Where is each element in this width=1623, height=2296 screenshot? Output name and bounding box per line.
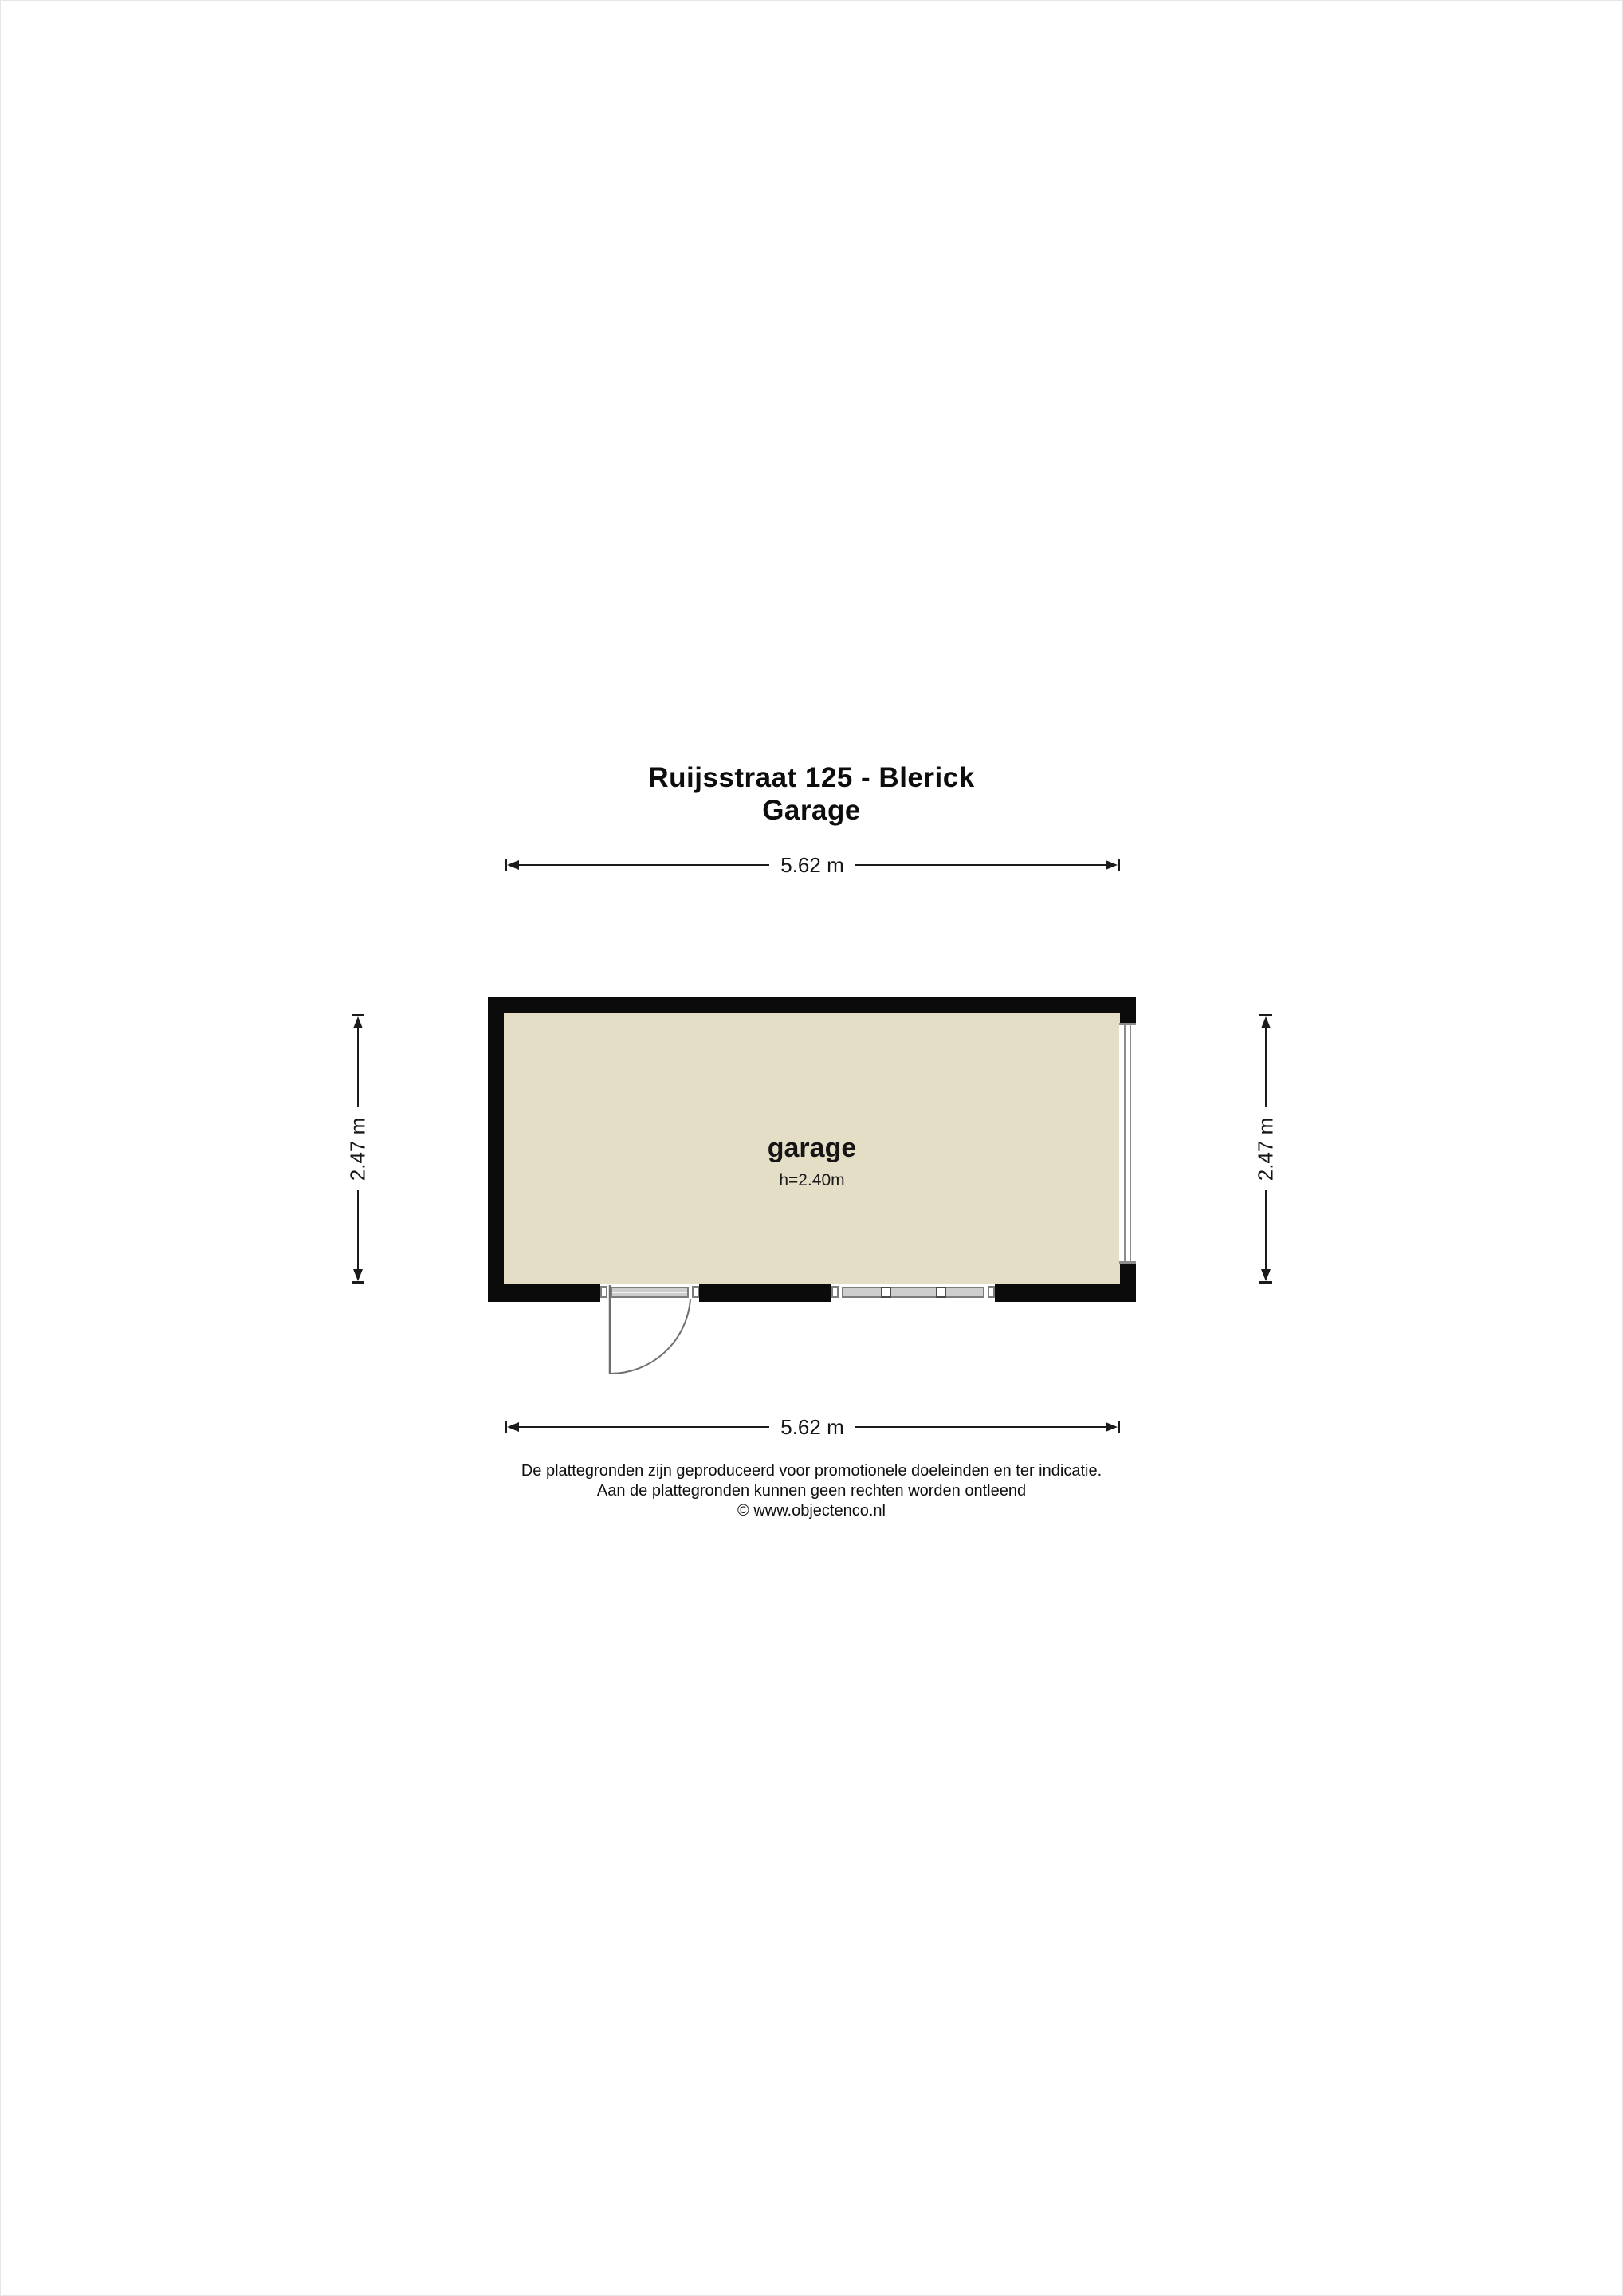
- arrow-left-icon: [507, 860, 519, 870]
- arrow-down-icon: [353, 1269, 363, 1281]
- dim-line: [519, 1426, 769, 1428]
- dimension-bottom-label: 5.62 m: [769, 1415, 855, 1440]
- room-label-block: garage h=2.40m: [504, 1133, 1120, 1190]
- window-mullion: [936, 1287, 946, 1298]
- dimension-left: 2.47 m: [342, 1014, 374, 1284]
- copyright-line: © www.objectenco.nl: [0, 1501, 1623, 1521]
- dimension-left-label: 2.47 m: [326, 1107, 390, 1190]
- arrow-up-icon: [353, 1016, 363, 1028]
- dimension-right: 2.47 m: [1250, 1014, 1282, 1284]
- arrow-right-icon: [1106, 860, 1118, 870]
- dim-line: [357, 1190, 359, 1269]
- dim-line: [1265, 1190, 1267, 1269]
- door-arc: [610, 1299, 690, 1374]
- dim-end-tick: [1118, 859, 1120, 871]
- page-subtitle: Garage: [0, 794, 1623, 827]
- dim-line: [519, 864, 769, 866]
- dim-line: [855, 864, 1106, 866]
- arrow-left-icon: [507, 1422, 519, 1432]
- dim-end-tick: [352, 1281, 364, 1284]
- window-mullion: [881, 1287, 891, 1298]
- room-height-label: h=2.40m: [504, 1171, 1120, 1190]
- disclaimer: De plattegronden zijn geproduceerd voor …: [0, 1461, 1623, 1521]
- dim-end-tick: [1259, 1281, 1272, 1284]
- dimension-right-label: 2.47 m: [1234, 1107, 1298, 1190]
- window-glass-line: [1124, 1025, 1126, 1261]
- dimension-left-text: 2.47 m: [346, 1117, 371, 1181]
- page-title: Ruijsstraat 125 - Blerick: [0, 761, 1623, 794]
- arrow-down-icon: [1261, 1269, 1271, 1281]
- door-swing: [590, 1276, 717, 1395]
- window-jamb: [831, 1286, 839, 1298]
- dimension-right-text: 2.47 m: [1254, 1117, 1279, 1181]
- window-frame: [842, 1287, 984, 1298]
- dim-line: [357, 1028, 359, 1107]
- floorplan-page: Ruijsstraat 125 - Blerick Garage 5.62 m …: [0, 0, 1623, 2296]
- dim-end-tick: [1118, 1421, 1120, 1433]
- dimension-top: 5.62 m: [505, 849, 1120, 881]
- disclaimer-line-2: Aan de plattegronden kunnen geen rechten…: [0, 1481, 1623, 1501]
- window-jamb: [988, 1286, 995, 1298]
- arrow-right-icon: [1106, 1422, 1118, 1432]
- right-wall-window: [1119, 1023, 1136, 1264]
- dimension-bottom: 5.62 m: [505, 1411, 1120, 1443]
- dimension-top-label: 5.62 m: [769, 853, 855, 878]
- window-glass-line: [1130, 1025, 1131, 1261]
- dim-line: [855, 1426, 1106, 1428]
- title-block: Ruijsstraat 125 - Blerick Garage: [0, 761, 1623, 827]
- dim-line: [1265, 1028, 1267, 1107]
- arrow-up-icon: [1261, 1016, 1271, 1028]
- bottom-wall-window: [831, 1284, 995, 1302]
- disclaimer-line-1: De plattegronden zijn geproduceerd voor …: [0, 1461, 1623, 1481]
- room-name: garage: [504, 1133, 1120, 1164]
